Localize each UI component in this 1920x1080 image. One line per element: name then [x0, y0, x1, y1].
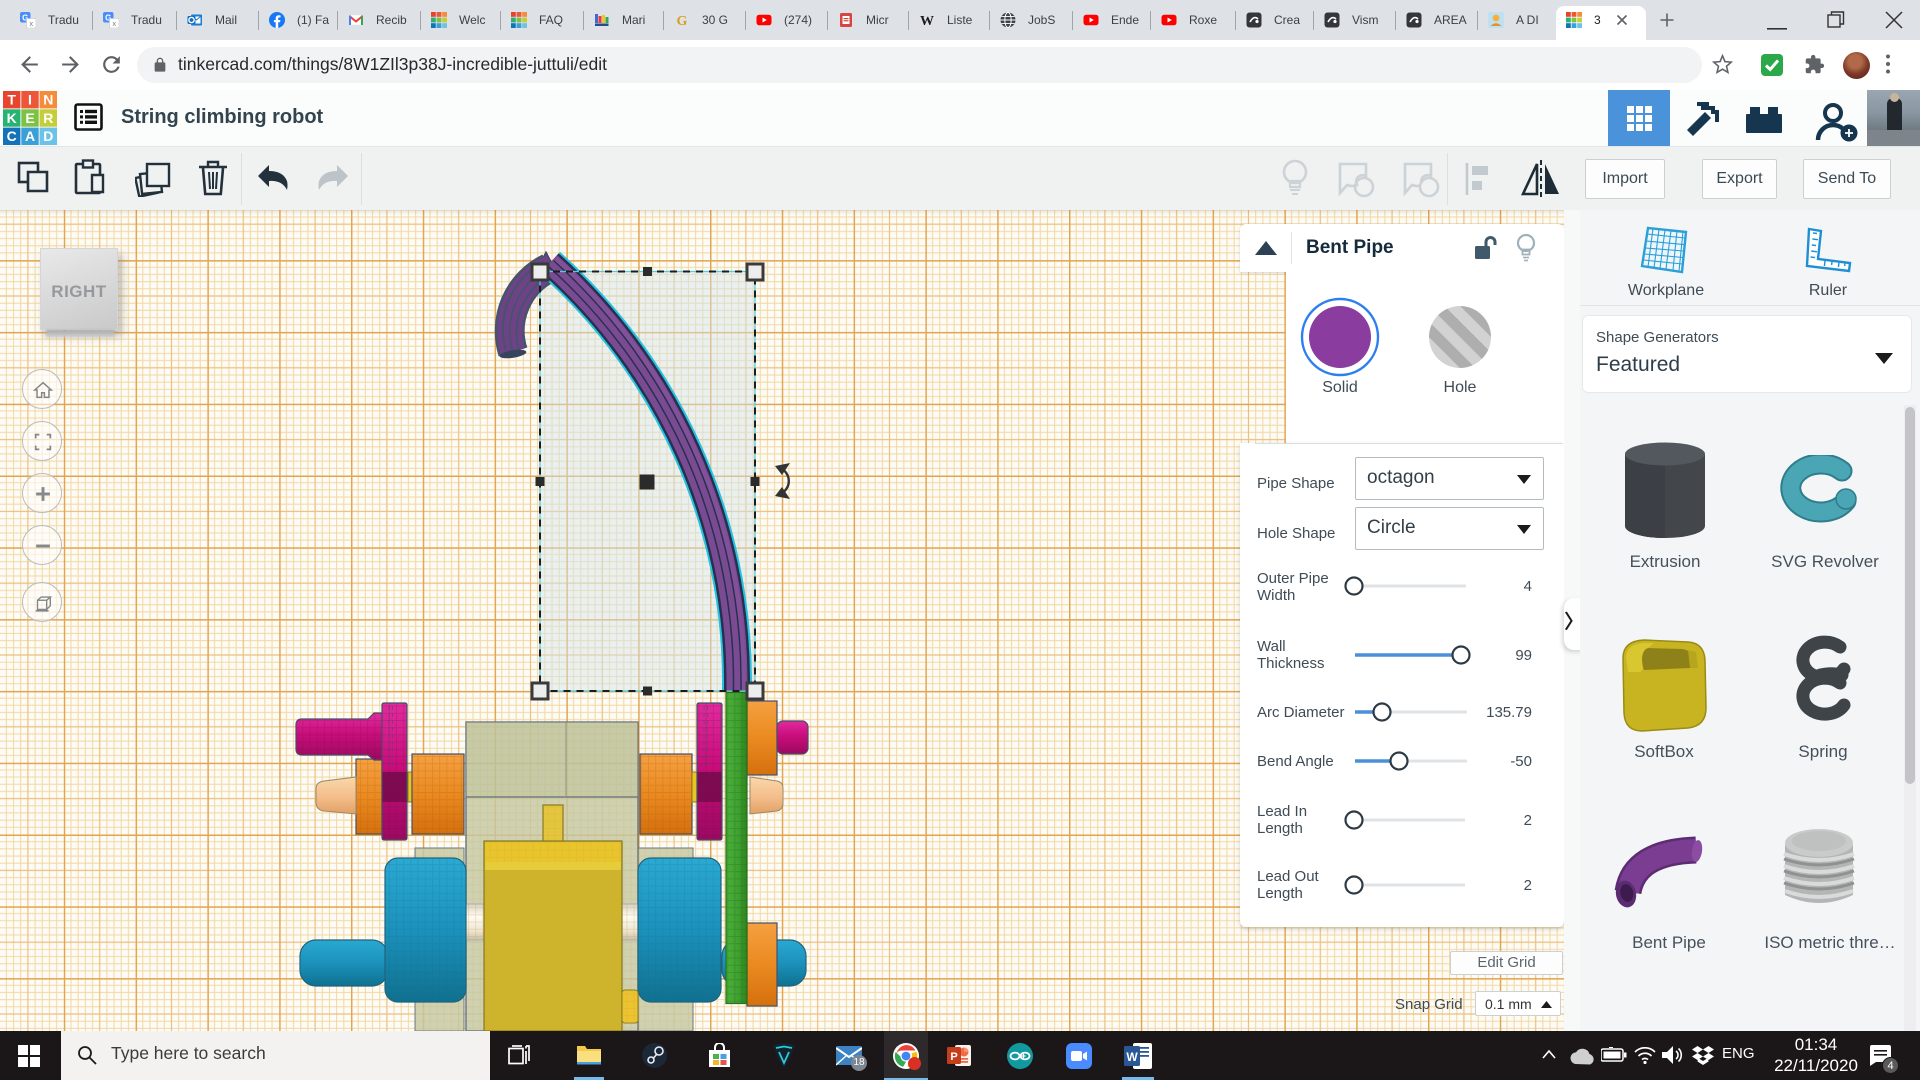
svg-text:W: W [1126, 1050, 1138, 1064]
svg-text:N: N [43, 92, 53, 108]
svg-text:C: C [7, 128, 17, 144]
svg-text:A: A [25, 128, 35, 144]
svg-text:G: G [677, 14, 688, 28]
svg-text:E: E [25, 110, 34, 126]
svg-text:P: P [950, 1051, 957, 1063]
svg-text:I: I [28, 92, 32, 108]
svg-text:D: D [43, 128, 53, 144]
svg-text:x: x [29, 19, 33, 28]
svg-text:x: x [112, 19, 116, 28]
svg-text:K: K [7, 110, 17, 126]
svg-text:R: R [43, 110, 53, 126]
svg-text:T: T [7, 92, 16, 108]
svg-text:W: W [920, 14, 934, 28]
